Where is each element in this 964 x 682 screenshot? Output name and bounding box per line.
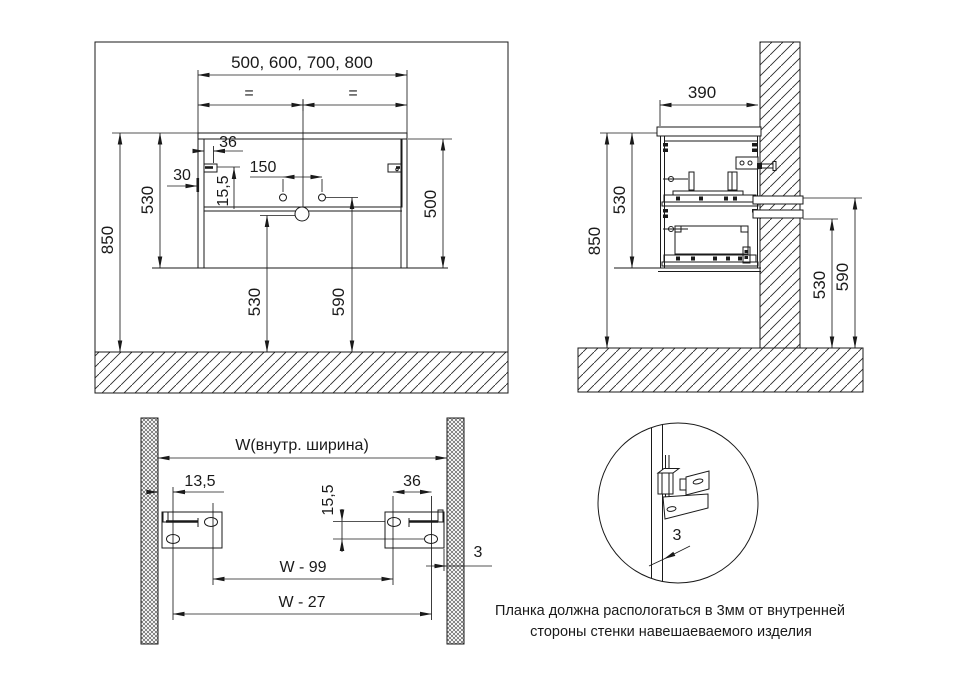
mounting-bracket-right xyxy=(385,510,444,548)
pipe-hole-left xyxy=(280,194,287,201)
drawing-canvas: 500, 600, 700, 800 = = 36 30 15,5 xyxy=(0,0,964,682)
dim-36: 36 xyxy=(219,134,237,151)
upper-drawer xyxy=(662,172,758,206)
dim-390: 390 xyxy=(688,83,716,102)
dim-3-detail: 3 xyxy=(673,527,682,544)
worktop-side xyxy=(657,127,761,136)
dim-30: 30 xyxy=(173,167,191,184)
dim-590-pipes: 590 xyxy=(329,288,348,316)
front-dimensions: 500, 600, 700, 800 = = 36 30 15,5 xyxy=(98,53,452,352)
bracket-placement-view: W(внутр. ширина) 13,5 36 15,5 W - 99 W -… xyxy=(141,418,492,644)
note-line-2: стороны стенки навешаеваемого изделия xyxy=(530,624,812,640)
cabinet-side xyxy=(614,127,776,272)
dim-150: 150 xyxy=(250,159,277,176)
dim-530-left: 530 xyxy=(138,186,157,214)
dim-inner-width: W(внутр. ширина) xyxy=(235,437,369,454)
drain-hole xyxy=(295,207,309,221)
left-panel xyxy=(198,139,204,268)
left-side-wall xyxy=(141,418,158,644)
note-block: Планка должна распологаться в 3мм от вну… xyxy=(495,603,845,640)
side-dimensions: 390 530 850 590 530 xyxy=(585,83,862,348)
bracket-3d xyxy=(658,469,709,520)
pipe-hole-right xyxy=(319,194,326,201)
hanging-bracket-left xyxy=(204,164,217,172)
dim-850-side: 850 xyxy=(585,227,604,255)
lower-drawer xyxy=(662,226,758,266)
installation-drawing: 500, 600, 700, 800 = = 36 30 15,5 xyxy=(0,0,964,682)
right-side-wall xyxy=(447,418,464,644)
circle-detail-view: 3 xyxy=(598,420,758,586)
cabinet-front xyxy=(152,100,448,268)
side-view: 390 530 850 590 530 xyxy=(578,42,863,392)
dim-3-bracket: 3 xyxy=(474,544,483,561)
dim-width-options: 500, 600, 700, 800 xyxy=(231,53,373,72)
dim-equal-right: = xyxy=(348,85,357,102)
pipe-upper xyxy=(753,196,803,204)
wall-hatch xyxy=(760,42,800,348)
note-line-1: Планка должна распологаться в 3мм от вну… xyxy=(495,603,845,619)
dim-w-27: W - 27 xyxy=(278,594,325,611)
dim-13-5: 13,5 xyxy=(184,473,215,490)
dim-590-side: 590 xyxy=(833,263,852,291)
dim-w-99: W - 99 xyxy=(279,559,326,576)
slot-hole xyxy=(425,535,438,544)
front-view: 500, 600, 700, 800 = = 36 30 15,5 xyxy=(95,42,508,393)
dim-850: 850 xyxy=(98,226,117,254)
dim-15-5-bracket: 15,5 xyxy=(320,484,337,515)
floor-hatch-side xyxy=(578,348,863,392)
dim-530-side: 530 xyxy=(610,186,629,214)
dim-36-bracket: 36 xyxy=(403,473,421,490)
hanging-bracket-right xyxy=(388,164,401,172)
dim-530-drain: 530 xyxy=(245,288,264,316)
dim-equal-left: = xyxy=(244,85,253,102)
slot-hole xyxy=(388,518,401,527)
slot-hole xyxy=(205,518,218,527)
pipe-lower xyxy=(753,210,803,218)
dim-15-5: 15,5 xyxy=(215,175,232,206)
floor-hatch xyxy=(95,352,508,393)
dim-530-pipe-side: 530 xyxy=(810,271,829,299)
dim-500: 500 xyxy=(421,190,440,218)
